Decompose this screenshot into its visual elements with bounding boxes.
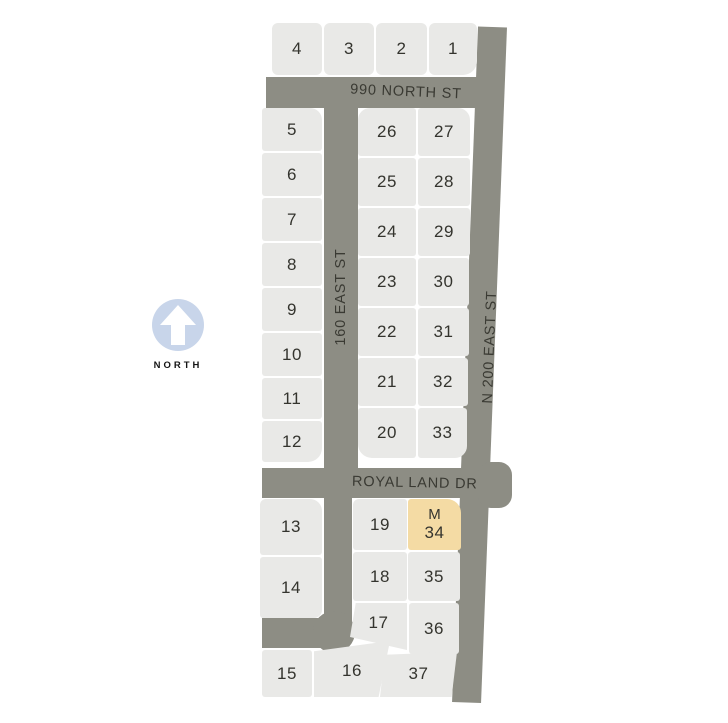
lot-15[interactable]: 15 (262, 650, 312, 697)
north-label: NORTH (138, 360, 218, 371)
lot-number: 24 (377, 222, 397, 242)
street-160-east-lower (324, 498, 352, 626)
lot-27[interactable]: 27 (418, 108, 470, 156)
lot-24[interactable]: 24 (358, 208, 416, 256)
lot-33[interactable]: 33 (418, 408, 467, 458)
lot-number: 20 (377, 423, 397, 443)
lot-number: 35 (424, 567, 444, 587)
lot-number: 22 (377, 322, 397, 342)
lot-23[interactable]: 23 (358, 258, 416, 306)
lot-number: 10 (282, 345, 302, 365)
lot-number: 31 (434, 322, 454, 342)
lot-number: 34 (425, 523, 445, 543)
lot-number: 12 (282, 432, 302, 452)
lot-number: 15 (277, 664, 297, 684)
lot-number: 23 (377, 272, 397, 292)
lot-37[interactable]: 37 (380, 650, 457, 697)
lot-number: 17 (369, 613, 389, 633)
lot-number: 14 (281, 578, 301, 598)
lot-number: 29 (434, 222, 454, 242)
lot-28[interactable]: 28 (418, 158, 470, 206)
lot-19[interactable]: 19 (353, 499, 407, 550)
lot-number: 18 (370, 567, 390, 587)
lot-30[interactable]: 30 (418, 258, 469, 306)
lot-number: 1 (448, 39, 458, 59)
lot-number: 25 (377, 172, 397, 192)
lot-number: 5 (287, 120, 297, 140)
lot-3[interactable]: 3 (324, 23, 374, 75)
lot-10[interactable]: 10 (262, 333, 322, 376)
lot-number: 36 (424, 619, 444, 639)
lot-31[interactable]: 31 (418, 308, 469, 356)
lot-9[interactable]: 9 (262, 288, 322, 331)
lot-number: 7 (287, 210, 297, 230)
lot-35[interactable]: 35 (408, 552, 460, 601)
lot-number: 16 (342, 661, 362, 681)
street-royal-land-bump (478, 462, 512, 508)
north-arrow-badge (152, 299, 204, 351)
lot-number: 8 (287, 255, 297, 275)
lot-20[interactable]: 20 (358, 408, 416, 458)
lot-4[interactable]: 4 (272, 23, 322, 75)
street-label-160-east: 160 EAST ST (333, 237, 349, 357)
lot-number: 9 (287, 300, 297, 320)
lot-number: 6 (287, 165, 297, 185)
street-label-royal-land: ROYAL LAND DR (352, 474, 467, 492)
lot-number: 2 (397, 39, 407, 59)
lot-number: 13 (281, 517, 301, 537)
plat-map: 990 NORTH ST 160 EAST ST N 200 EAST ST R… (0, 0, 728, 723)
lot-14[interactable]: 14 (260, 557, 322, 618)
lot-7[interactable]: 7 (262, 198, 322, 241)
lot-13[interactable]: 13 (260, 499, 322, 555)
lot-11[interactable]: 11 (262, 378, 322, 419)
lot-number: 37 (409, 664, 429, 684)
lot-marker: M (428, 506, 441, 523)
lot-number: 26 (377, 122, 397, 142)
lot-number: 30 (434, 272, 454, 292)
lot-8[interactable]: 8 (262, 243, 322, 286)
lot-5[interactable]: 5 (262, 108, 322, 151)
lot-29[interactable]: 29 (418, 208, 470, 256)
north-arrow-icon (152, 299, 204, 351)
lot-number: 27 (434, 122, 454, 142)
lot-number: 32 (433, 372, 453, 392)
lot-25[interactable]: 25 (358, 158, 416, 206)
lot-36[interactable]: 36 (409, 603, 459, 654)
lot-2[interactable]: 2 (376, 23, 427, 75)
lot-number: 4 (292, 39, 302, 59)
lot-number: 28 (434, 172, 454, 192)
lot-number: 19 (370, 515, 390, 535)
lot-22[interactable]: 22 (358, 308, 416, 356)
lot-number: 21 (377, 372, 397, 392)
lot-number: 33 (433, 423, 453, 443)
lot-1[interactable]: 1 (429, 23, 477, 75)
lot-34-highlighted[interactable]: M 34 (408, 499, 461, 550)
lot-26[interactable]: 26 (358, 108, 416, 156)
lot-21[interactable]: 21 (358, 358, 416, 406)
lot-18[interactable]: 18 (353, 552, 407, 601)
lot-32[interactable]: 32 (418, 358, 468, 406)
lot-number: 3 (344, 39, 354, 59)
lot-number: 11 (283, 389, 302, 409)
lot-6[interactable]: 6 (262, 153, 322, 196)
lot-12[interactable]: 12 (262, 421, 322, 462)
